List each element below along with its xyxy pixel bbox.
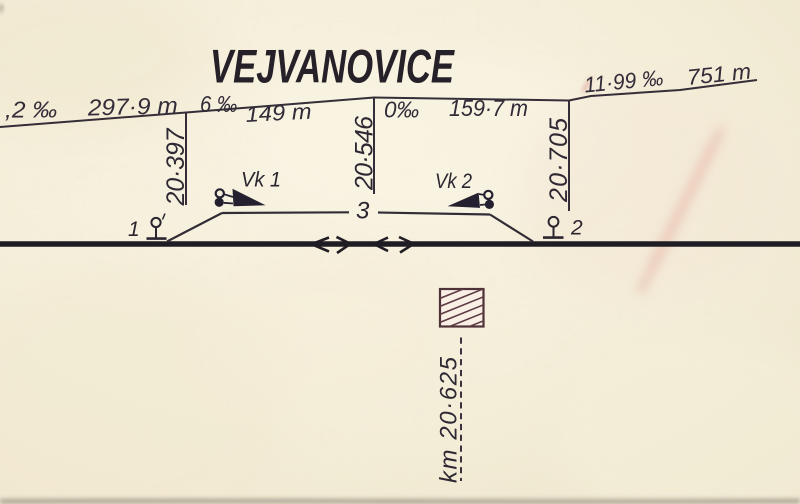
svg-text:2: 2 [570, 217, 583, 240]
svg-text:1: 1 [128, 218, 140, 241]
svg-text:159·7 m: 159·7 m [449, 95, 528, 121]
svg-text:,2 ‰: ,2 ‰ [5, 97, 57, 123]
svg-text:149 m: 149 m [245, 99, 312, 127]
svg-text:297·9 m: 297·9 m [86, 92, 178, 120]
svg-text:20·705: 20·705 [545, 118, 573, 203]
svg-text:km 20·625: km 20·625 [436, 356, 463, 483]
svg-text:VEJVANOVICE: VEJVANOVICE [210, 40, 455, 93]
svg-text:3: 3 [356, 198, 370, 225]
svg-text:Vk 1: Vk 1 [241, 169, 281, 192]
svg-text:Vk 2: Vk 2 [435, 170, 472, 193]
svg-text:20·397: 20·397 [162, 127, 190, 206]
svg-text:20·546: 20·546 [351, 116, 379, 191]
svg-text:6 ‰: 6 ‰ [200, 91, 237, 117]
svg-text:0‰: 0‰ [384, 97, 419, 123]
